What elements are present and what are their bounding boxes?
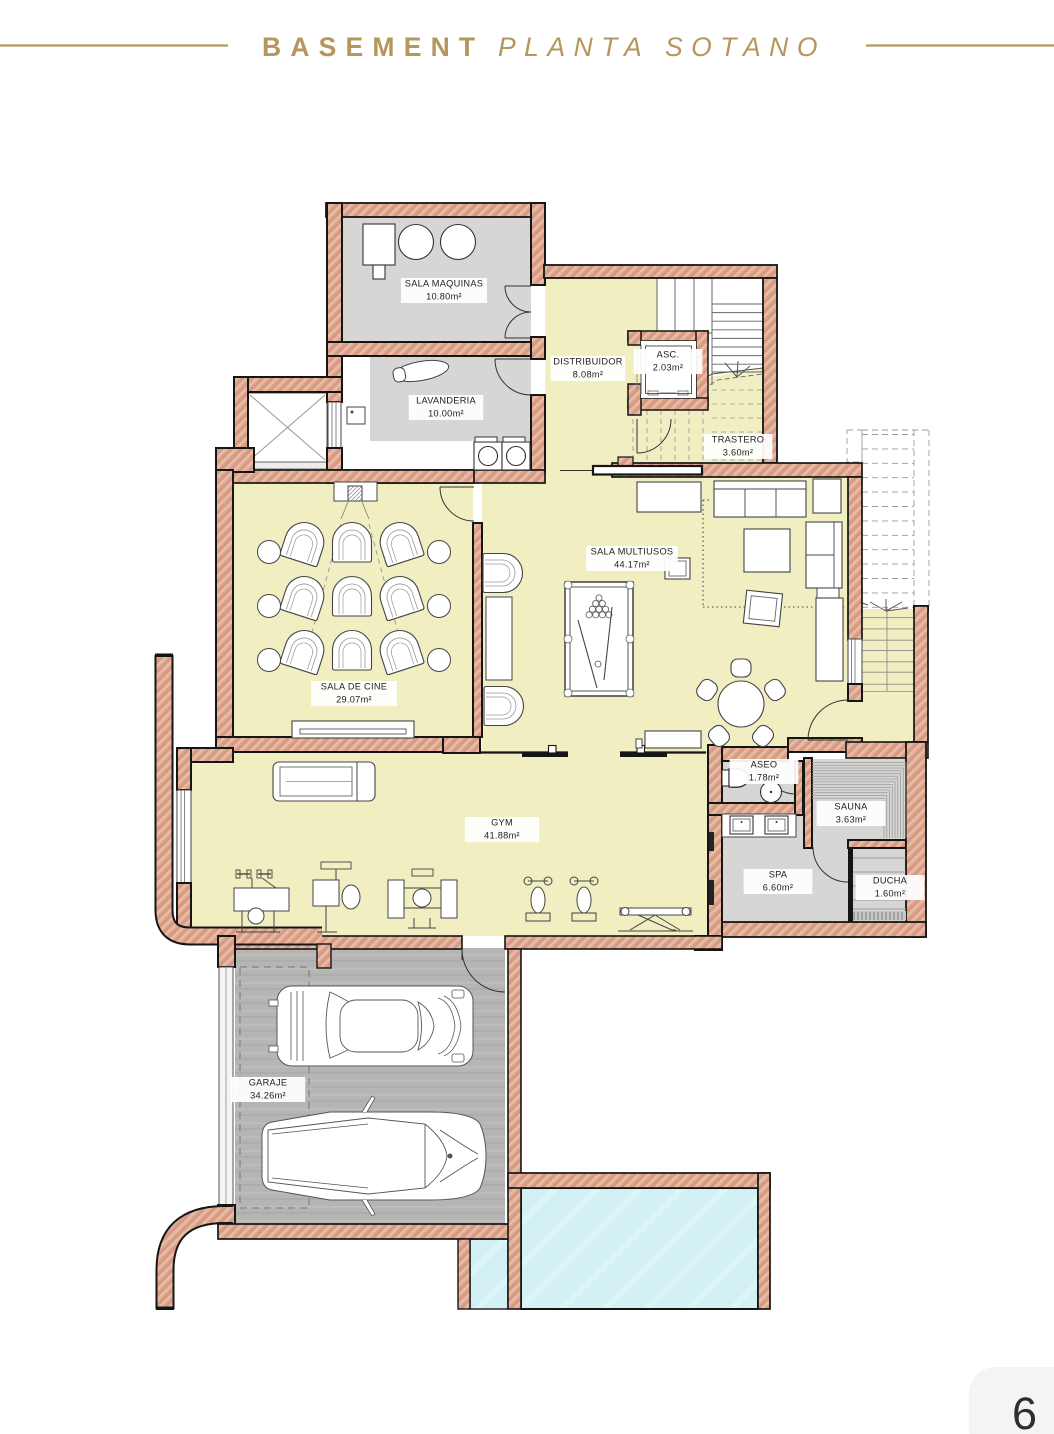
svg-text:GARAJE: GARAJE <box>249 1078 288 1088</box>
svg-text:LAVANDERIA: LAVANDERIA <box>416 396 476 406</box>
svg-text:SALA DE CINE: SALA DE CINE <box>321 682 387 692</box>
svg-text:34.26m²: 34.26m² <box>250 1091 286 1101</box>
svg-text:41.88m²: 41.88m² <box>484 831 520 841</box>
svg-text:10.80m²: 10.80m² <box>426 292 462 302</box>
svg-text:3.60m²: 3.60m² <box>723 448 753 458</box>
svg-text:DUCHA: DUCHA <box>873 876 908 886</box>
svg-text:SAUNA: SAUNA <box>834 802 868 812</box>
svg-text:1.78m²: 1.78m² <box>749 773 779 783</box>
svg-text:10.00m²: 10.00m² <box>428 409 464 419</box>
svg-text:2.03m²: 2.03m² <box>653 363 683 373</box>
svg-text:3.63m²: 3.63m² <box>836 815 866 825</box>
svg-text:SPA: SPA <box>769 870 788 880</box>
svg-text:6.60m²: 6.60m² <box>763 883 793 893</box>
svg-text:ASC.: ASC. <box>657 350 680 360</box>
svg-text:ASEO: ASEO <box>751 760 778 770</box>
svg-text:GYM: GYM <box>491 818 513 828</box>
svg-text:SALA MAQUINAS: SALA MAQUINAS <box>405 279 483 289</box>
svg-text:DISTRIBUIDOR: DISTRIBUIDOR <box>553 357 623 367</box>
svg-text:29.07m²: 29.07m² <box>336 695 372 705</box>
svg-text:PLANTA SOTANO: PLANTA SOTANO <box>498 32 826 62</box>
svg-text:SALA MULTIUSOS: SALA MULTIUSOS <box>591 547 674 557</box>
svg-text:8.08m²: 8.08m² <box>573 370 603 380</box>
svg-text:44.17m²: 44.17m² <box>614 560 650 570</box>
svg-text:BASEMENT: BASEMENT <box>262 32 484 62</box>
svg-text:1.60m²: 1.60m² <box>875 889 905 899</box>
svg-text:TRASTERO: TRASTERO <box>712 435 764 445</box>
